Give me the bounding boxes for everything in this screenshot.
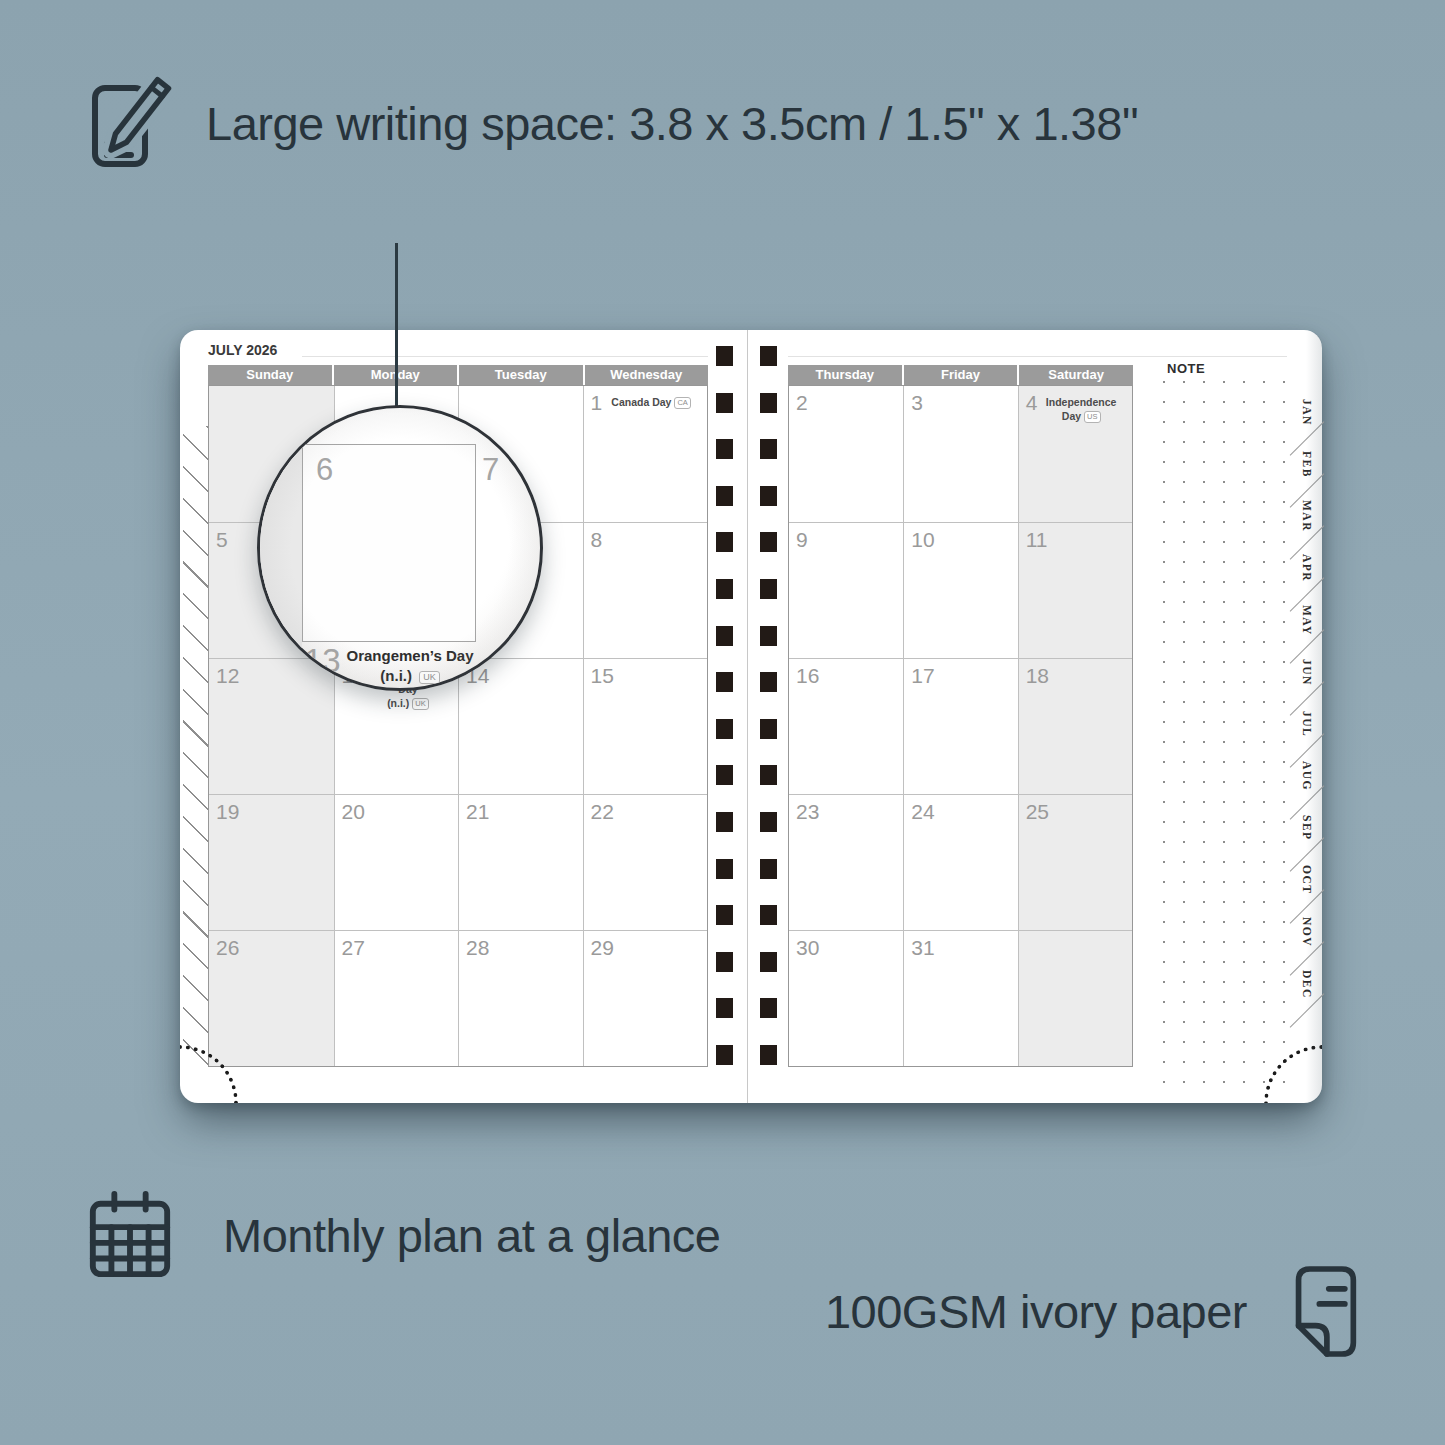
spiral-hole <box>716 532 733 552</box>
spiral-hole <box>716 393 733 413</box>
day-number: 15 <box>591 665 614 686</box>
day-header-row: SundayMondayTuesdayWednesday <box>208 365 708 385</box>
spiral-hole <box>760 439 777 459</box>
day-cell: 15 <box>583 658 708 794</box>
day-number: 9 <box>796 529 808 550</box>
day-cell: 12 <box>209 658 334 794</box>
day-number: 2 <box>796 392 808 413</box>
magnified-day-number: 7 <box>482 454 499 485</box>
day-cell: 2 <box>789 386 903 522</box>
day-cell: 27 <box>334 930 459 1066</box>
day-cell: 10 <box>903 522 1017 658</box>
day-number: 19 <box>216 801 239 822</box>
day-header: Friday <box>904 365 1018 385</box>
holiday-line: Orangemen’s Day <box>347 647 474 664</box>
day-number: 3 <box>911 392 923 413</box>
day-cell: 20 <box>334 794 459 930</box>
day-number: 5 <box>216 529 228 550</box>
day-cell: 22 <box>583 794 708 930</box>
day-cell: 11 <box>1018 522 1132 658</box>
spiral-hole <box>760 626 777 646</box>
page-edge-hatch <box>183 426 208 1070</box>
day-header: Saturday <box>1019 365 1133 385</box>
country-badge: CA <box>674 397 690 409</box>
day-number: 4 <box>1026 392 1038 413</box>
day-cell: 17 <box>903 658 1017 794</box>
feature-monthly-plan: Monthly plan at a glance <box>85 1190 721 1280</box>
feature-paper: 100GSM ivory paper <box>825 1264 1359 1359</box>
title-rule <box>788 356 1287 357</box>
day-number: 16 <box>796 665 819 686</box>
day-number: 27 <box>342 937 365 958</box>
day-number: 28 <box>466 937 489 958</box>
spiral-hole <box>716 812 733 832</box>
calendar-grid-right: ThursdayFridaySaturday 234Independence D… <box>788 365 1133 1067</box>
day-header: Sunday <box>208 365 332 385</box>
feature-paper-label: 100GSM ivory paper <box>825 1284 1247 1339</box>
day-number: 1 <box>591 392 603 413</box>
day-number: 8 <box>591 529 603 550</box>
day-cell: 1Canada DayCA <box>583 386 708 522</box>
day-cell: 18 <box>1018 658 1132 794</box>
spiral-hole <box>716 672 733 692</box>
spiral-hole <box>760 486 777 506</box>
planner-product-image: Large writing space: 3.8 x 3.5cm / 1.5" … <box>0 0 1445 1445</box>
day-cell: 21 <box>458 794 583 930</box>
spiral-hole <box>760 812 777 832</box>
spiral-hole <box>760 579 777 599</box>
spiral-hole <box>716 346 733 366</box>
magnifier-circle: 6 7 13 Orangemen’s Day (n.i.) UK <box>257 405 543 691</box>
day-number: 24 <box>911 801 934 822</box>
note-label: NOTE <box>1165 361 1210 378</box>
spiral-hole <box>716 765 733 785</box>
day-number: 21 <box>466 801 489 822</box>
holiday-label: Canada DayCA <box>602 392 700 409</box>
day-number: 18 <box>1026 665 1049 686</box>
day-number: 23 <box>796 801 819 822</box>
spiral-hole <box>760 393 777 413</box>
corner-perforation <box>122 1045 238 1161</box>
spiral-hole <box>716 439 733 459</box>
day-number: 31 <box>911 937 934 958</box>
holiday-label: Independence DayUS <box>1037 392 1125 423</box>
spiral-hole <box>760 765 777 785</box>
day-cell: 23 <box>789 794 903 930</box>
spiral-hole <box>760 672 777 692</box>
day-cell: 19 <box>209 794 334 930</box>
day-number: 29 <box>591 937 614 958</box>
spiral-hole <box>716 719 733 739</box>
day-cell: 9 <box>789 522 903 658</box>
day-cell: 29 <box>583 930 708 1066</box>
spiral-hole <box>760 1045 777 1065</box>
day-cell: 16 <box>789 658 903 794</box>
spiral-hole <box>716 579 733 599</box>
month-title: JULY 2026 <box>208 342 277 358</box>
day-cell: 31 <box>903 930 1017 1066</box>
day-cell: 30 <box>789 930 903 1066</box>
day-header-row: ThursdayFridaySaturday <box>788 365 1133 385</box>
spiral-hole <box>716 1045 733 1065</box>
spiral-hole <box>716 905 733 925</box>
day-number: 12 <box>216 665 239 686</box>
day-number: 25 <box>1026 801 1049 822</box>
feature-monthly-plan-label: Monthly plan at a glance <box>223 1208 721 1263</box>
corner-perforation <box>1264 1045 1380 1161</box>
spiral-hole <box>716 998 733 1018</box>
spiral-hole <box>716 859 733 879</box>
day-number: 17 <box>911 665 934 686</box>
spiral-hole <box>760 346 777 366</box>
magnified-day-number: 6 <box>316 454 333 485</box>
country-badge: US <box>1084 411 1100 423</box>
page-gutter-line <box>747 330 748 1103</box>
spiral-hole <box>716 952 733 972</box>
day-number: 22 <box>591 801 614 822</box>
spiral-hole <box>716 486 733 506</box>
day-header: Wednesday <box>585 365 709 385</box>
spiral-hole <box>716 626 733 646</box>
day-number: 20 <box>342 801 365 822</box>
day-number: 30 <box>796 937 819 958</box>
spiral-hole <box>760 905 777 925</box>
day-number: 11 <box>1026 529 1048 550</box>
spiral-hole <box>760 859 777 879</box>
pencil-note-icon <box>85 76 180 171</box>
day-header: Thursday <box>788 365 902 385</box>
spiral-hole <box>760 719 777 739</box>
feature-writing-space: Large writing space: 3.8 x 3.5cm / 1.5" … <box>85 76 1138 171</box>
calendar-grid-icon <box>85 1190 175 1280</box>
paper-sheet-icon <box>1291 1264 1359 1359</box>
spiral-hole <box>760 532 777 552</box>
callout-line <box>395 243 398 409</box>
day-cell: 3 <box>903 386 1017 522</box>
country-badge: UK <box>412 698 428 710</box>
page-curl-shade <box>1306 330 1322 1103</box>
day-number: 10 <box>911 529 934 550</box>
day-cell: 24 <box>903 794 1017 930</box>
holiday-line: (n.i.) <box>380 667 412 684</box>
calendar-body-right: 234Independence DayUS9101116171823242530… <box>788 385 1133 1067</box>
spiral-hole <box>760 998 777 1018</box>
day-cell: 28 <box>458 930 583 1066</box>
day-cell: 26 <box>209 930 334 1066</box>
day-cell: 25 <box>1018 794 1132 930</box>
day-cell: 14 <box>458 658 583 794</box>
day-cell: 8 <box>583 522 708 658</box>
feature-writing-space-label: Large writing space: 3.8 x 3.5cm / 1.5" … <box>206 96 1138 151</box>
note-dot-grid: NOTE <box>1145 363 1287 1089</box>
day-cell <box>1018 930 1132 1066</box>
title-rule <box>302 356 708 357</box>
day-number: 26 <box>216 937 239 958</box>
day-cell: 4Independence DayUS <box>1018 386 1132 522</box>
spiral-hole <box>760 952 777 972</box>
day-header: Tuesday <box>459 365 583 385</box>
country-badge: UK <box>419 671 440 685</box>
